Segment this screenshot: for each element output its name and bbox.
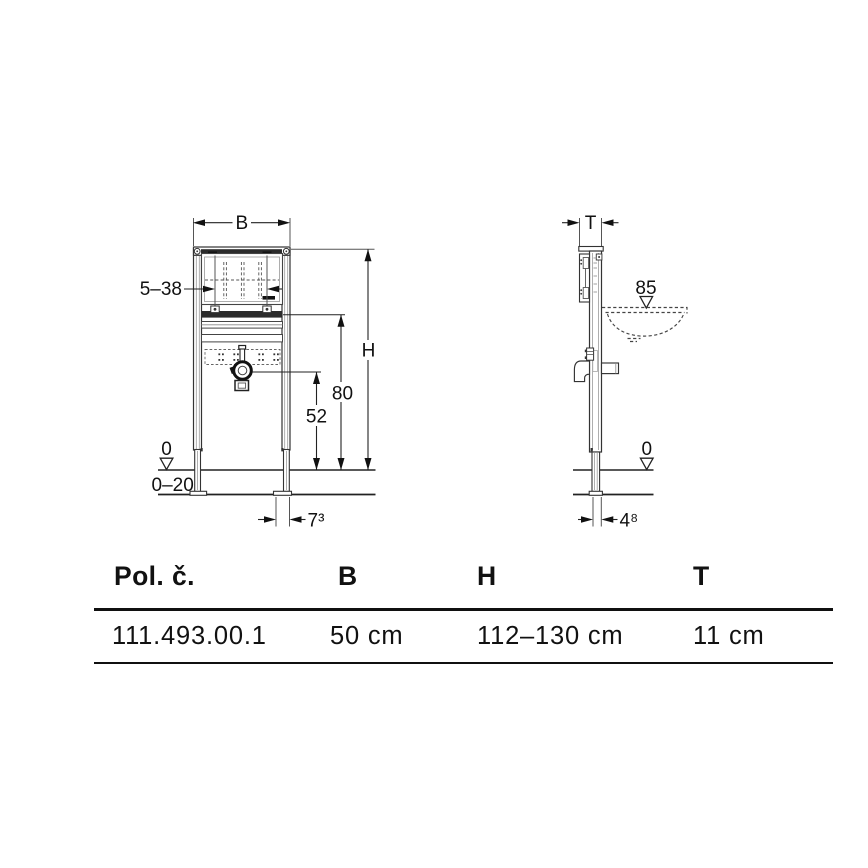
cell-article-number: 111.493.00.1 (112, 624, 267, 650)
cell-height: 112–130 cm (477, 624, 623, 650)
cell-width: 50 cm (330, 624, 403, 650)
col-header-h: H (477, 563, 497, 590)
spec-table: Pol. č. B H T 111.493.00.1 50 cm 112–130… (0, 0, 868, 868)
table-rule-bottom (94, 662, 833, 665)
col-header-article: Pol. č. (114, 563, 195, 590)
table-rule-top (94, 608, 833, 611)
cell-depth: 11 cm (693, 624, 765, 650)
col-header-b: B (338, 563, 358, 590)
col-header-t: T (693, 563, 710, 590)
page: B (0, 0, 868, 868)
